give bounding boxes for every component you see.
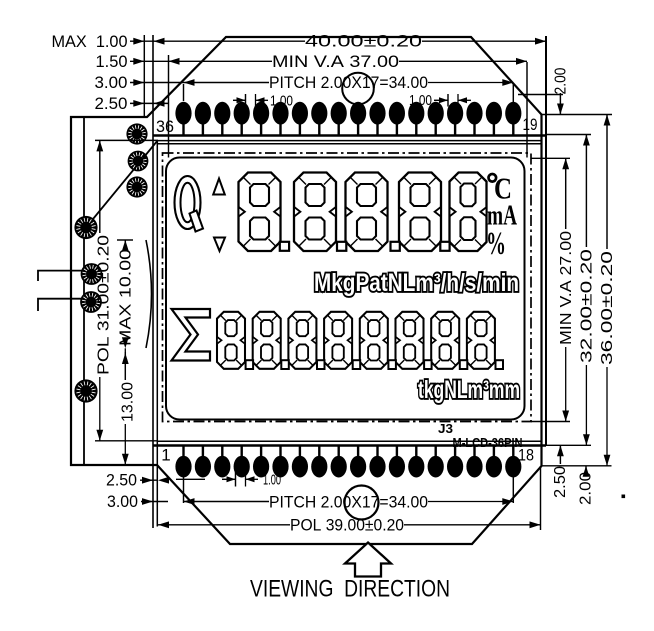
svg-text:1: 1 [161, 446, 170, 465]
svg-text:3.00: 3.00 [95, 74, 128, 92]
svg-text:36: 36 [156, 117, 174, 136]
svg-text:%: % [486, 226, 506, 262]
svg-text:1.00: 1.00 [263, 471, 281, 488]
svg-text:1.00: 1.00 [270, 92, 293, 109]
svg-text:36.00±0.20: 36.00±0.20 [599, 251, 616, 365]
svg-text:MAX 1.00: MAX 1.00 [52, 33, 128, 51]
svg-text:M-LCD-36PIN: M-LCD-36PIN [453, 435, 523, 450]
svg-text:1.50: 1.50 [96, 53, 128, 71]
svg-text:1.00: 1.00 [409, 92, 432, 109]
svg-text:tkgNLm³mm: tkgNLm³mm [418, 376, 520, 404]
svg-text:VIEWING DIRECTION: VIEWING DIRECTION [250, 576, 450, 603]
svg-text:2.50: 2.50 [106, 472, 137, 490]
svg-text:MIN V.A 27.00: MIN V.A 27.00 [558, 231, 575, 345]
svg-text:POL 31.00±0.20: POL 31.00±0.20 [96, 235, 113, 375]
svg-text:2.50: 2.50 [552, 466, 569, 498]
svg-text:POL 39.00±0.20: POL 39.00±0.20 [290, 516, 404, 534]
svg-text:J3: J3 [438, 421, 453, 436]
svg-text:MIN V.A 37.00: MIN V.A 37.00 [272, 53, 399, 71]
svg-text:MAX 10.00: MAX 10.00 [118, 249, 135, 346]
svg-text:2.00: 2.00 [553, 67, 570, 94]
svg-text:3.00: 3.00 [107, 493, 138, 511]
svg-text:13.00: 13.00 [120, 382, 137, 422]
svg-text:40.00±0.20: 40.00±0.20 [305, 33, 422, 51]
svg-text:2.00: 2.00 [578, 472, 595, 505]
svg-text:2.50: 2.50 [95, 95, 128, 113]
svg-text:19: 19 [523, 115, 538, 134]
svg-text:MkgPatNLm³/h/s/min: MkgPatNLm³/h/s/min [314, 269, 519, 297]
svg-text:PITCH 2.00X17=34.00: PITCH 2.00X17=34.00 [269, 493, 428, 511]
svg-text:32.00±0.20: 32.00±0.20 [579, 249, 596, 363]
